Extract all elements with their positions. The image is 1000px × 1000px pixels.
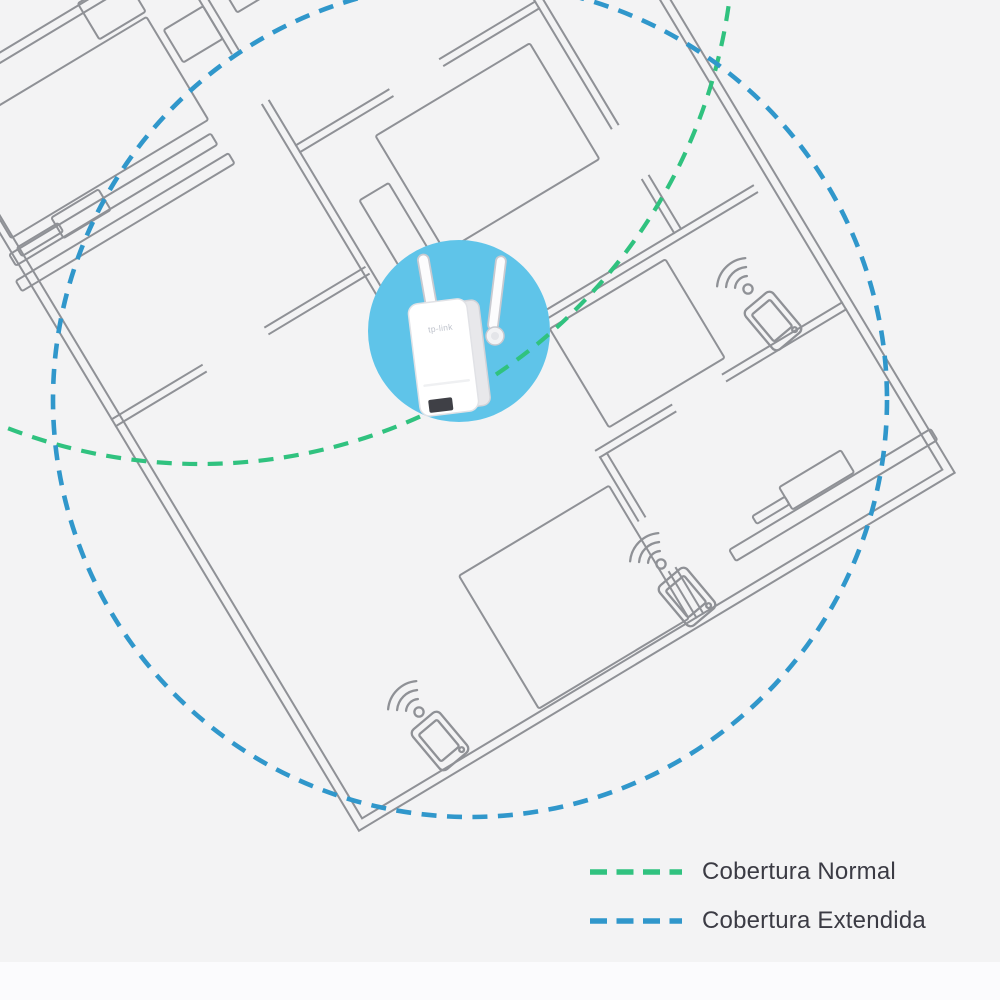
cabinet-top-2: [164, 6, 223, 62]
wifi-signal-icon: [388, 681, 423, 716]
wifi-signal-icon: [717, 258, 752, 293]
smartphone-bottom-left: [388, 681, 470, 772]
rug-right-room: [550, 259, 725, 427]
bed-top-middle: [376, 43, 600, 251]
interior-wall-lower-right: [596, 303, 846, 458]
dresser-rail-2: [16, 153, 235, 291]
extender-antenna-knob-center: [491, 332, 499, 340]
diagram-canvas: tp-link Cobertura Normal Cobertura Exten…: [0, 0, 1000, 1000]
legend-label-normal: Cobertura Normal: [702, 858, 896, 886]
cabinet-top-1: [78, 0, 146, 39]
smartphone-top-right: [717, 258, 803, 352]
legend-label-extendida: Cobertura Extendida: [702, 907, 926, 935]
sofa-table: [779, 450, 854, 509]
coverage-diagram: tp-link: [0, 0, 1000, 1000]
legend-item-normal: Cobertura Normal: [588, 858, 926, 886]
sofa-nub: [752, 497, 789, 524]
extender-body: tp-link: [407, 296, 491, 417]
normal-coverage-circle: [0, 0, 734, 464]
interior-wall-top-left: [112, 267, 369, 426]
interior-wall-top-middle: [296, 2, 539, 153]
bed-top-left: [0, 17, 208, 238]
sofa-rail: [729, 429, 937, 561]
legend-item-extendida: Cobertura Extendida: [588, 907, 926, 935]
bed-bottom: [459, 486, 689, 709]
extended-coverage-swatch: [588, 917, 684, 925]
footer-band: [0, 962, 1000, 1000]
coverage-legend: Cobertura Normal Cobertura Extendida: [588, 858, 926, 935]
interior-wall-vertical-right: [416, 0, 681, 233]
normal-coverage-swatch: [588, 868, 684, 876]
smartphone-icon: [409, 710, 470, 773]
